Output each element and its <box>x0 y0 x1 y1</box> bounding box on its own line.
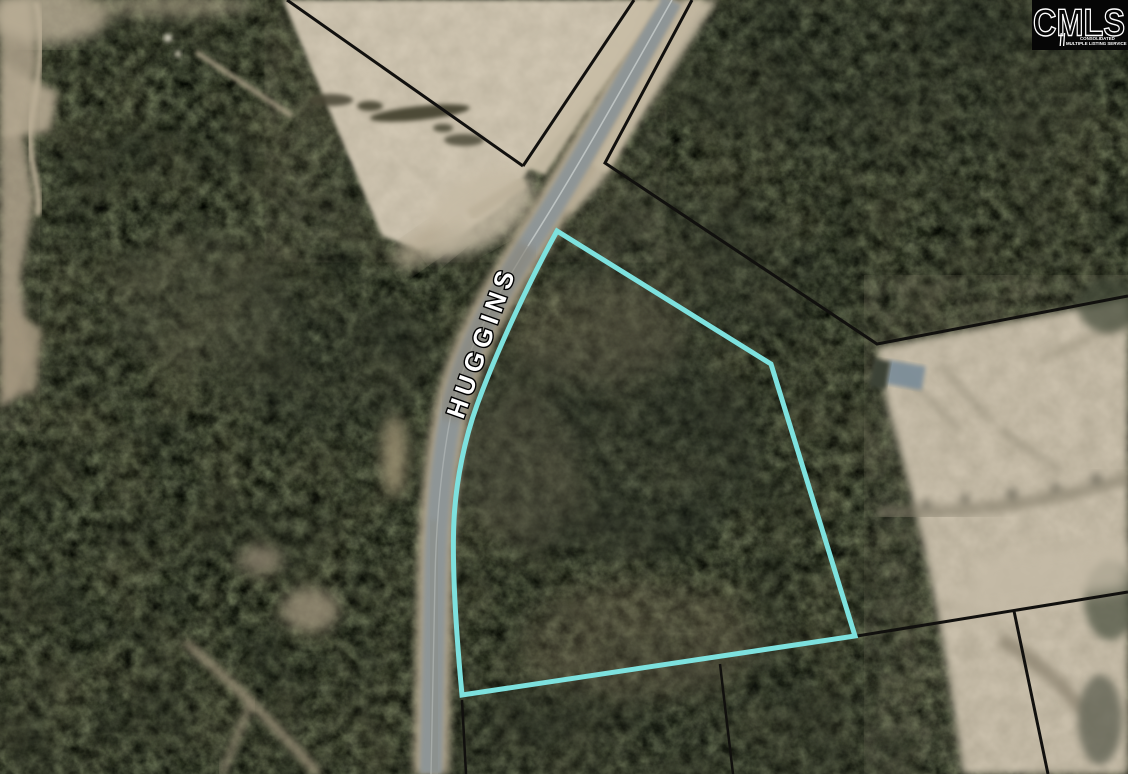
svg-text:MULTIPLE LISTING SERVICE: MULTIPLE LISTING SERVICE <box>1066 41 1127 46</box>
